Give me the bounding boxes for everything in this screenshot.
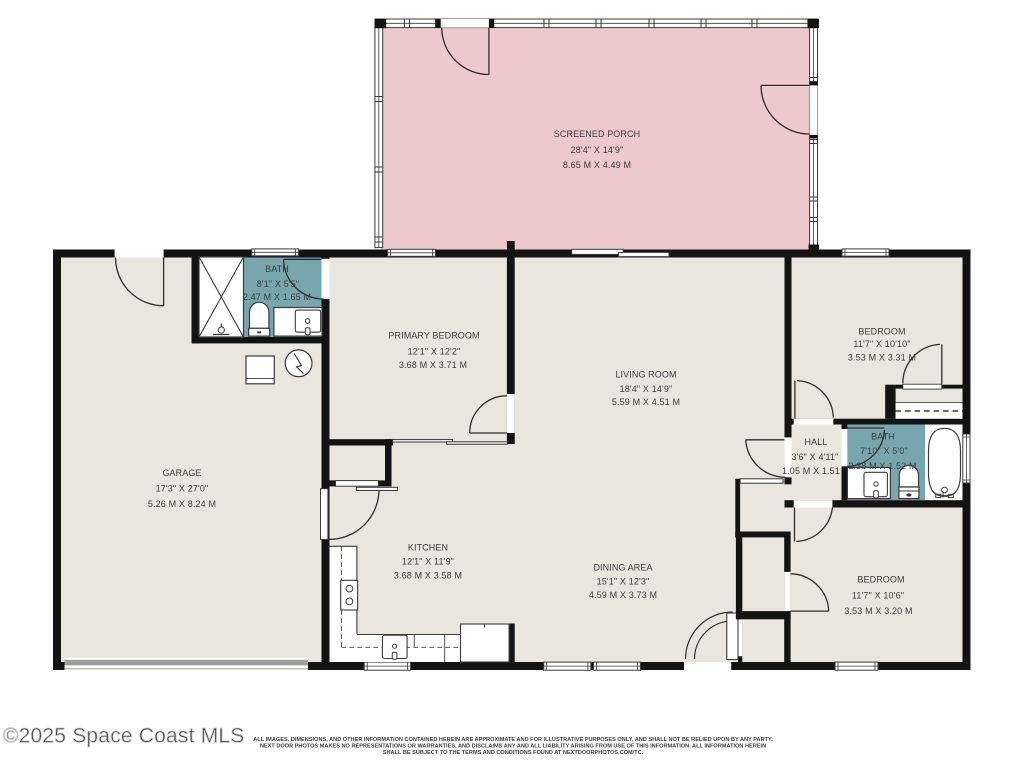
svg-text:4.59 M X 3.73 M: 4.59 M X 3.73 M [589,590,657,600]
svg-text:5.26 M X 8.24 M: 5.26 M X 8.24 M [148,499,216,509]
svg-text:8.65 M X 4.49 M: 8.65 M X 4.49 M [563,160,631,170]
svg-text:LIVING ROOM: LIVING ROOM [615,370,676,380]
svg-text:BATH: BATH [871,432,895,442]
svg-text:KITCHEN: KITCHEN [408,543,448,553]
svg-text:3'6" X 4'11": 3'6" X 4'11" [792,452,839,462]
svg-text:SCREENED PORCH: SCREENED PORCH [554,129,640,139]
svg-text:17'3" X 27'0": 17'3" X 27'0" [156,484,209,494]
svg-text:SHALL BE SUBJECT TO THE TERMS: SHALL BE SUBJECT TO THE TERMS AND CONDIT… [383,750,644,756]
svg-text:5.59 M X 4.51 M: 5.59 M X 4.51 M [612,397,680,407]
svg-text:BEDROOM: BEDROOM [858,327,905,337]
svg-text:3.68 M X 3.58 M: 3.68 M X 3.58 M [394,571,462,581]
svg-text:18'4" X 14'9": 18'4" X 14'9" [620,384,673,394]
svg-text:PRIMARY BEDROOM: PRIMARY BEDROOM [388,331,479,341]
svg-text:12'1" X 12'2": 12'1" X 12'2" [408,347,461,357]
svg-text:11'7" X 10'6": 11'7" X 10'6" [852,591,904,601]
svg-text:3.53 M X 3.31 M: 3.53 M X 3.31 M [848,353,916,363]
svg-text:3.68 M X 3.71 M: 3.68 M X 3.71 M [399,360,467,370]
svg-text:12'1" X 11'9": 12'1" X 11'9" [402,557,454,567]
svg-text:8'1" X 5'5": 8'1" X 5'5" [257,279,300,289]
svg-text:15'1" X 12'3": 15'1" X 12'3" [597,577,650,587]
svg-text:GARAGE: GARAGE [162,468,201,478]
svg-text:3.53 M X 3.20 M: 3.53 M X 3.20 M [844,606,912,616]
svg-text:2.47 M X 1.65 M: 2.47 M X 1.65 M [243,292,311,302]
svg-text:2.38 M X 1.52 M: 2.38 M X 1.52 M [848,461,916,471]
svg-text:ALL IMAGES, DIMENSIONS, AND OT: ALL IMAGES, DIMENSIONS, AND OTHER INFORM… [253,737,773,743]
svg-text:DINING AREA: DINING AREA [593,563,652,573]
svg-text:28'4" X 14'9": 28'4" X 14'9" [571,145,624,155]
svg-text:HALL: HALL [805,437,828,447]
svg-text:BATH: BATH [265,264,289,274]
svg-text:©2025 Space Coast MLS: ©2025 Space Coast MLS [3,725,244,748]
svg-text:7'10" X 5'0": 7'10" X 5'0" [860,446,908,456]
svg-text:1.05 M X 1.51: 1.05 M X 1.51 [782,466,840,476]
svg-text:NEXT DOOR PHOTOS MAKES NO REPR: NEXT DOOR PHOTOS MAKES NO REPRESENTATION… [260,744,766,750]
svg-text:11'7" X 10'10": 11'7" X 10'10" [853,339,910,349]
svg-text:BEDROOM: BEDROOM [857,575,904,585]
